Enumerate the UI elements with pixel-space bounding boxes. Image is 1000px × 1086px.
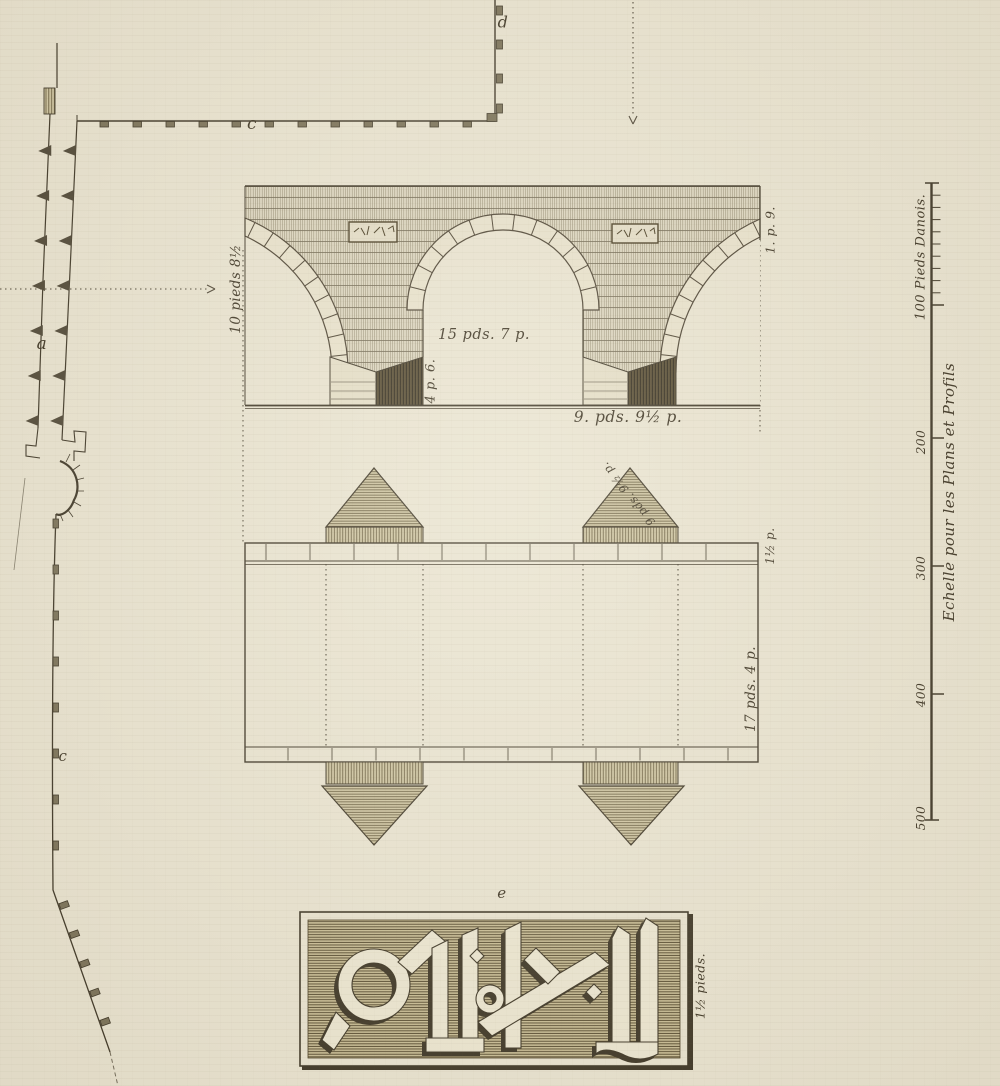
deck-stone-joints xyxy=(266,544,728,761)
merlon xyxy=(100,122,109,128)
bridge-plan xyxy=(245,468,758,845)
scale-tick-200: 200 xyxy=(914,430,928,454)
wall-triangle xyxy=(50,415,63,426)
scale-tick-500: 500 xyxy=(914,806,928,830)
merlon xyxy=(232,122,241,128)
elevation-parapet-label: 1. p. 9. xyxy=(763,206,778,254)
wall-triangle xyxy=(38,145,51,156)
wall-triangle xyxy=(26,415,39,426)
plan-width-label: 17 pds. 4 p. xyxy=(743,646,759,732)
merlon xyxy=(463,122,472,128)
wall-triangle xyxy=(61,190,74,201)
merlon xyxy=(90,988,101,997)
wall-triangle xyxy=(54,325,67,336)
merlon xyxy=(69,930,80,939)
merlon xyxy=(265,122,274,128)
elevation-pier-base-label: 4 p. 6. xyxy=(424,359,439,404)
cutwater-down-left xyxy=(322,786,427,845)
cutwater-down-right xyxy=(579,786,684,845)
center-arch-opening xyxy=(423,230,583,405)
wall-triangle xyxy=(28,370,41,381)
plan-outline xyxy=(245,543,758,762)
merlon xyxy=(397,122,406,128)
bridge-elevation xyxy=(245,186,760,409)
elevation-pier-width-label: 9. pds. 9½ p. xyxy=(574,408,683,426)
scale-first-label: 100 Pieds Danois. xyxy=(914,194,929,321)
merlon xyxy=(199,122,208,128)
merlon xyxy=(53,841,59,850)
merlon xyxy=(331,122,340,128)
plan-deck-edge-label: 1½ p. xyxy=(763,527,777,564)
merlon xyxy=(53,657,59,666)
merlon xyxy=(497,74,503,83)
wall-label-d: d xyxy=(498,13,509,32)
merlon xyxy=(59,901,70,910)
arrow-down-icon xyxy=(629,116,637,124)
merlon xyxy=(53,519,59,528)
inscription-height-label: 1½ pieds. xyxy=(693,953,708,1019)
wall-triangle xyxy=(36,190,49,201)
wall-triangle xyxy=(52,370,65,381)
wall-label-a: a xyxy=(37,334,48,354)
wall-label-c-upper: c xyxy=(247,114,257,134)
scale-title: Echelle pour les Plans et Profils xyxy=(940,363,958,622)
cutwater-up-left xyxy=(326,468,423,527)
merlon xyxy=(364,122,373,128)
inscription-label-e: e xyxy=(497,884,506,902)
wall-triangle xyxy=(34,235,47,246)
wall-triangle xyxy=(32,280,45,291)
inscription-panel xyxy=(300,912,693,1070)
pier-hidden-lines xyxy=(326,564,678,746)
scale-tick-300: 300 xyxy=(914,556,928,580)
wall-label-c-lower: c xyxy=(59,747,68,765)
merlon xyxy=(53,703,59,712)
engraving-linework xyxy=(0,0,1000,1086)
merlon xyxy=(79,959,90,968)
wall-triangle xyxy=(59,235,72,246)
merlon xyxy=(166,122,175,128)
merlon xyxy=(53,565,59,574)
merlon xyxy=(298,122,307,128)
merlon xyxy=(53,611,59,620)
scale-tick-400: 400 xyxy=(914,683,928,707)
wall-triangle xyxy=(57,280,70,291)
merlon xyxy=(497,104,503,113)
merlon xyxy=(133,122,142,128)
arrow-right-icon xyxy=(207,285,215,293)
merlon xyxy=(53,795,59,804)
merlon xyxy=(497,40,503,49)
elevation-span-label: 15 pds. 7 p. xyxy=(438,327,530,343)
merlon xyxy=(100,1017,111,1026)
wall-triangle xyxy=(63,145,76,156)
elevation-height-label: 10 pieds 8½ xyxy=(228,244,244,333)
merlon xyxy=(430,122,439,128)
